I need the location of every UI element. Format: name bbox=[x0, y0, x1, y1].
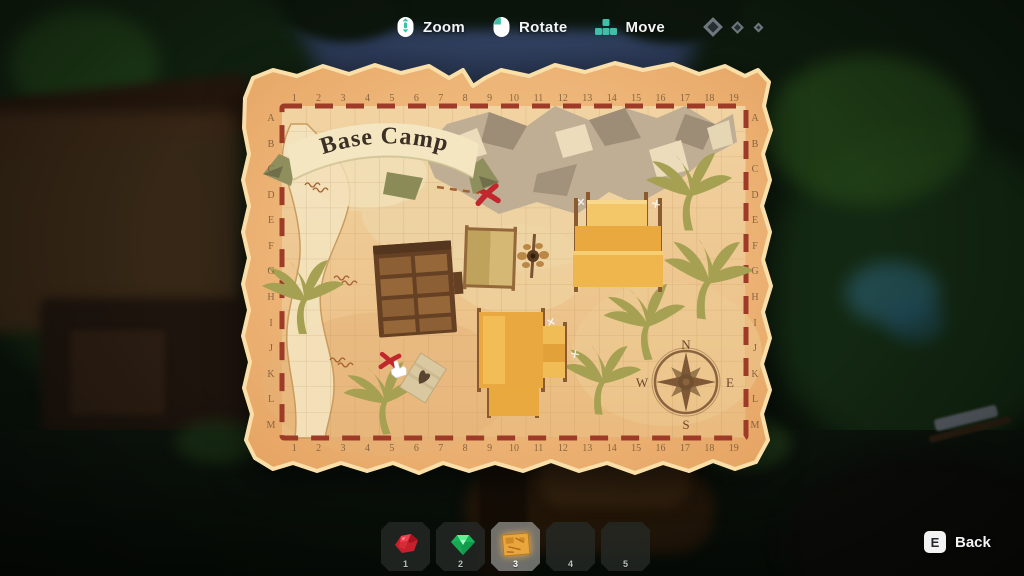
back-label: Back bbox=[955, 534, 991, 551]
mouse-scroll-icon bbox=[396, 15, 415, 39]
control-move: Move bbox=[595, 16, 666, 38]
controls-legend: Zoom Rotate Move bbox=[396, 15, 762, 39]
hotbar-slot-5[interactable]: 5 bbox=[601, 522, 650, 571]
control-label: Zoom bbox=[423, 19, 465, 36]
hotbar-slot-1[interactable]: 1 bbox=[381, 522, 430, 571]
wasd-keys-icon bbox=[595, 16, 618, 38]
slot-number: 4 bbox=[546, 559, 595, 569]
hotbar-slot-4[interactable]: 4 bbox=[546, 522, 595, 571]
green-gem-icon bbox=[445, 531, 477, 557]
back-hint[interactable]: E Back bbox=[924, 531, 991, 553]
mouse-left-button-icon bbox=[492, 15, 511, 39]
compass-rose bbox=[652, 348, 720, 416]
slot-number: 3 bbox=[491, 559, 540, 569]
diamond-icon bbox=[731, 21, 744, 34]
hotbar: 1 2 3 4 bbox=[381, 522, 650, 571]
slot-number: 1 bbox=[381, 559, 430, 569]
control-rotate: Rotate bbox=[492, 15, 567, 39]
treasure-map-icon bbox=[499, 529, 533, 559]
progress-diamonds bbox=[706, 20, 762, 34]
control-label: Move bbox=[626, 19, 666, 36]
key-e[interactable]: E bbox=[924, 531, 946, 553]
red-gem-icon bbox=[391, 532, 421, 556]
control-label: Rotate bbox=[519, 19, 567, 36]
compass-s: S bbox=[682, 417, 689, 432]
compass-w: W bbox=[636, 375, 649, 390]
slot-number: 2 bbox=[436, 559, 485, 569]
hotbar-slot-3-selected[interactable]: 3 bbox=[491, 522, 540, 571]
compass-n: N bbox=[681, 337, 691, 352]
hotbar-slot-2[interactable]: 2 bbox=[436, 522, 485, 571]
treasure-map[interactable]: N S W E bbox=[237, 54, 777, 486]
slot-number: 5 bbox=[601, 559, 650, 569]
control-zoom: Zoom bbox=[396, 15, 465, 39]
diamond-icon bbox=[754, 22, 764, 32]
compass-e: E bbox=[726, 375, 734, 390]
map-structure-stall bbox=[463, 225, 517, 291]
game-screen: Zoom Rotate Move bbox=[0, 0, 1024, 576]
diamond-icon bbox=[703, 17, 723, 37]
